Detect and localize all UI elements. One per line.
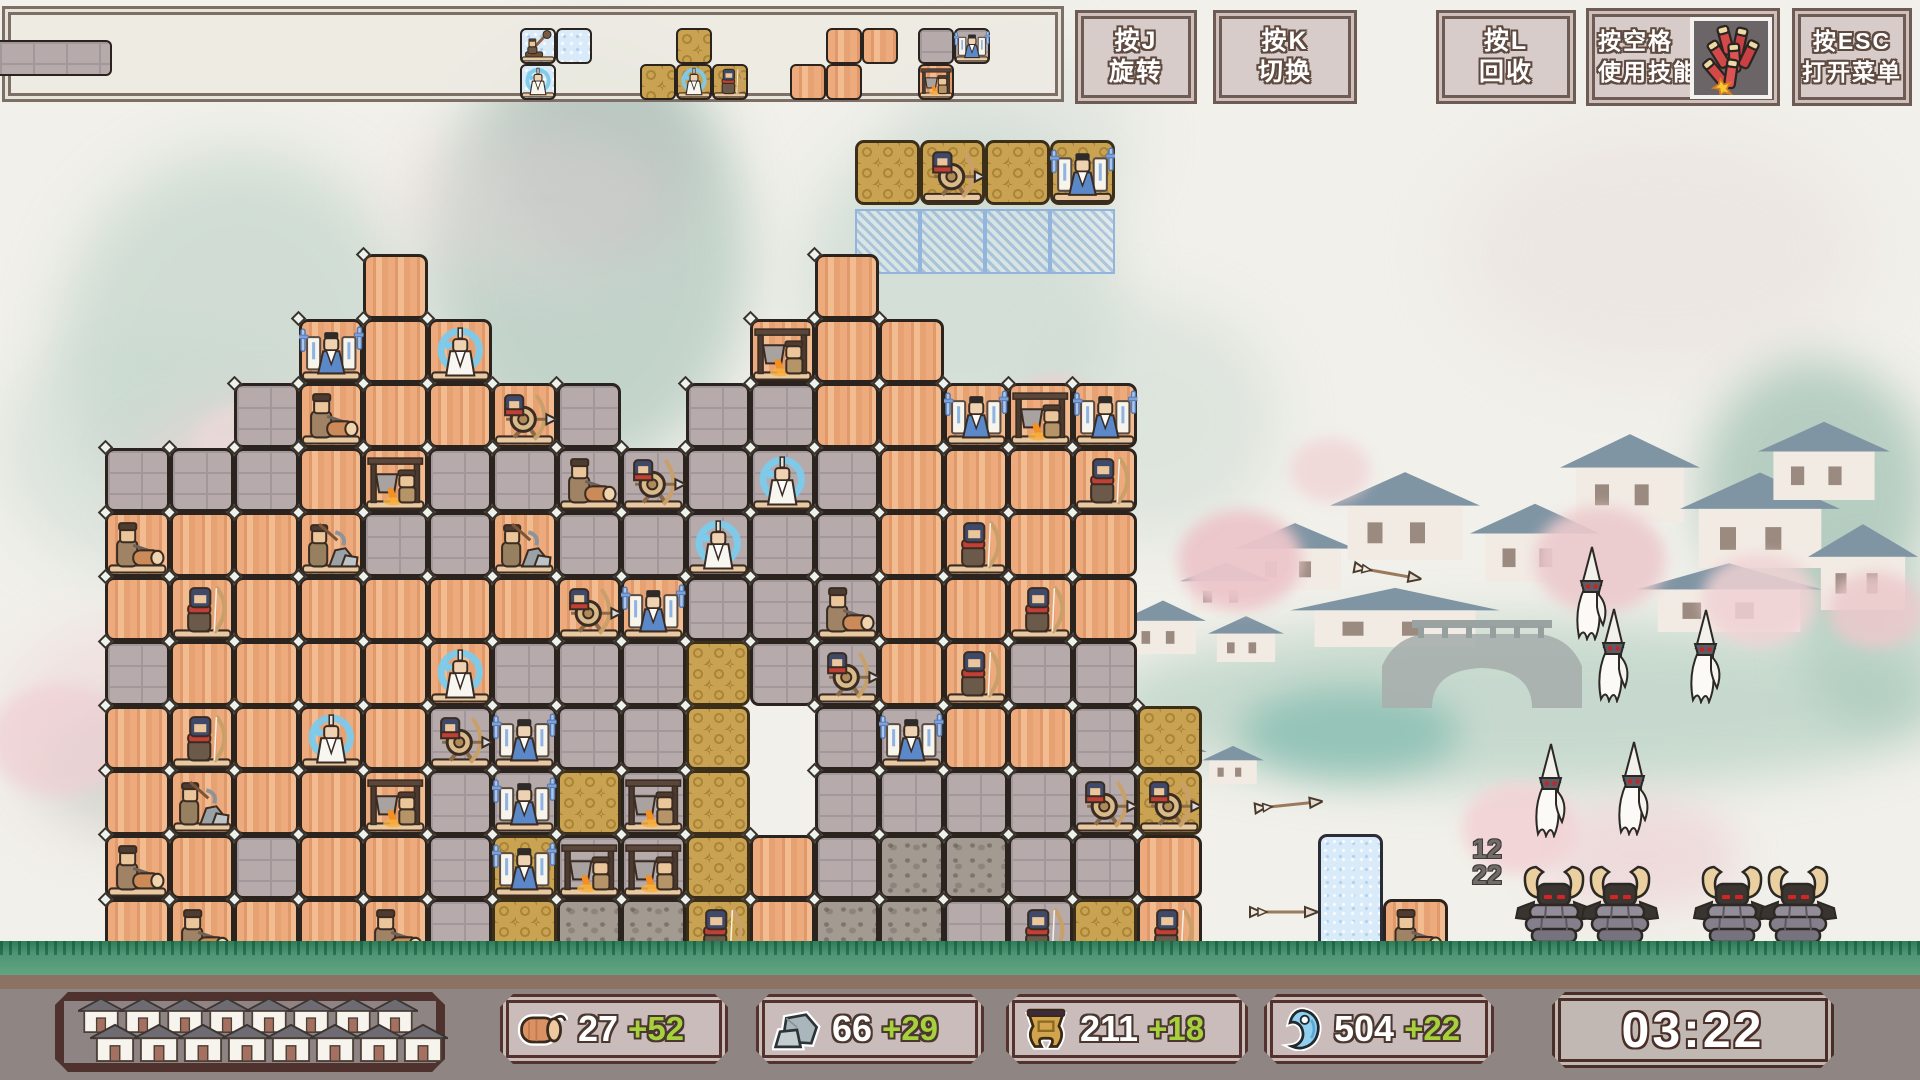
archer-unit [170, 704, 235, 769]
queue-piece-3-block [862, 28, 898, 64]
general-unit [492, 768, 557, 833]
wall-block [1073, 835, 1138, 900]
background-house [1208, 614, 1284, 662]
monk-unit [428, 317, 493, 382]
wall-block [234, 835, 299, 900]
wall-block [686, 383, 751, 448]
wall-block [944, 448, 1009, 513]
wall-block [492, 448, 557, 513]
recycle-button[interactable]: 按L 回收 [1436, 10, 1576, 104]
archer-unit [944, 510, 1009, 575]
wall-block [1137, 706, 1202, 771]
ding-icon [1022, 1006, 1070, 1052]
archer-unit [1073, 446, 1138, 511]
wall-block [750, 512, 815, 577]
wall-block [105, 706, 170, 771]
jade-resource-panel: 504 +22 [1264, 994, 1494, 1064]
wall-block [492, 641, 557, 706]
woodcutter-unit [815, 575, 880, 640]
archer-unit [170, 575, 235, 640]
rotate-action-label: 旋转 [1109, 57, 1163, 88]
wall-block [686, 706, 751, 771]
woodcutter-unit [105, 510, 170, 575]
jade-icon [1280, 1007, 1324, 1051]
wall-block [944, 835, 1009, 900]
wall-block [363, 641, 428, 706]
wall-block [686, 835, 751, 900]
forge-unit [363, 446, 428, 511]
skill-button[interactable]: 按空格 使用技能 [1586, 8, 1780, 106]
flying-arrow [1351, 560, 1422, 586]
wood-delta: +52 [628, 1010, 684, 1048]
wall-block [686, 770, 751, 835]
background-house [1202, 744, 1264, 784]
wall-block [621, 641, 686, 706]
wall-block [299, 770, 364, 835]
wall-block [750, 383, 815, 448]
blossom-tree [1290, 438, 1370, 502]
wall-block [363, 835, 428, 900]
rotate-key-label: 按J [1115, 26, 1158, 57]
monk-unit [686, 510, 751, 575]
game-screen: 按J 旋转 按K 切换 按L 回收 按空格 使用技能 按ESC 打开菜单 27 … [0, 0, 1920, 1080]
firecracker-icon [1694, 21, 1768, 95]
archer-unit [1008, 575, 1073, 640]
wall-block [1008, 770, 1073, 835]
wall-block [879, 383, 944, 448]
forge-unit [750, 317, 815, 382]
enemy-counter-top: 12 [1472, 836, 1502, 862]
wall-block [879, 319, 944, 384]
wall-block [234, 383, 299, 448]
monk-unit [750, 446, 815, 511]
falling-piece-block [985, 140, 1050, 205]
wood-resource-panel: 27 +52 [500, 994, 728, 1064]
miner-unit [492, 510, 557, 575]
switch-button[interactable]: 按K 切换 [1213, 10, 1357, 104]
recycle-key-label: 按L [1484, 26, 1528, 57]
general-unit [299, 317, 364, 382]
village-house [266, 1022, 316, 1062]
village-house [90, 1022, 140, 1062]
woodcutter-unit [557, 446, 622, 511]
general-unit [492, 704, 557, 769]
wall-block [299, 448, 364, 513]
woodcutter-unit [105, 833, 170, 898]
bronze-resource-panel: 211 +18 [1006, 994, 1248, 1064]
queue-piece-3-block [790, 64, 826, 100]
wall-block [815, 319, 880, 384]
bronze-count: 211 [1080, 1008, 1138, 1050]
wall-block [815, 770, 880, 835]
menu-action-label: 打开菜单 [1802, 57, 1902, 88]
log-icon [516, 1008, 568, 1050]
wall-block [428, 512, 493, 577]
ballista-unit [492, 381, 557, 446]
wall-block [750, 641, 815, 706]
wall-block [1073, 706, 1138, 771]
village-house [134, 1022, 184, 1062]
wall-block [363, 706, 428, 771]
drop-preview-cell [985, 209, 1050, 274]
wall-block [105, 577, 170, 642]
timer-panel: 03:22 [1552, 992, 1834, 1068]
ballista-unit [1073, 768, 1138, 833]
samurai-enemy [1756, 862, 1840, 946]
wall-block [234, 641, 299, 706]
drop-preview-cell [1050, 209, 1115, 274]
catapult-unit [520, 24, 556, 64]
stone-icon [772, 1007, 822, 1051]
menu-button[interactable]: 按ESC 打开菜单 [1792, 8, 1912, 106]
timer-value: 03:22 [1622, 1001, 1765, 1059]
wall-block [1008, 448, 1073, 513]
wall-block [557, 512, 622, 577]
enemy-counter-bottom: 22 [1472, 862, 1502, 888]
ghost-enemy [1682, 608, 1730, 704]
ballista-unit [920, 138, 985, 203]
ghost-enemy [1527, 742, 1575, 838]
wall-block [234, 577, 299, 642]
village-house [222, 1022, 272, 1062]
wall-block [299, 835, 364, 900]
general-unit [879, 704, 944, 769]
wall-block [234, 706, 299, 771]
wall-block [105, 770, 170, 835]
ballista-unit [1137, 768, 1202, 833]
ghost-enemy [1610, 740, 1658, 836]
general-unit [1050, 138, 1115, 203]
wall-block [879, 577, 944, 642]
stone-resource-panel: 66 +29 [756, 994, 984, 1064]
wall-block [686, 448, 751, 513]
wall-block [815, 254, 880, 319]
wall-block [1073, 641, 1138, 706]
miner-unit [299, 510, 364, 575]
menu-key-label: 按ESC [1813, 26, 1891, 57]
miner-unit [170, 768, 235, 833]
woodcutter-unit [299, 381, 364, 446]
wall-block [750, 577, 815, 642]
wall-block [815, 448, 880, 513]
wall-block [879, 835, 944, 900]
ballista-unit [428, 704, 493, 769]
bronze-delta: +18 [1148, 1010, 1204, 1048]
queue-piece-2-block [640, 64, 676, 100]
wall-block [686, 641, 751, 706]
wall-block [492, 577, 557, 642]
village-house [178, 1022, 228, 1062]
wall-block [428, 383, 493, 448]
blossom-tree [1828, 572, 1920, 649]
forge-unit [363, 768, 428, 833]
wall-block [170, 835, 235, 900]
forge-unit [557, 833, 622, 898]
wall-block [234, 512, 299, 577]
wall-block [944, 706, 1009, 771]
wall-block [105, 641, 170, 706]
flying-arrow [1252, 794, 1323, 815]
wall-block [815, 706, 880, 771]
wall-block [1008, 706, 1073, 771]
ghost-enemy [1590, 607, 1638, 703]
switch-action-label: 切换 [1258, 57, 1312, 88]
ballista-unit [815, 639, 880, 704]
wall-block [170, 448, 235, 513]
enemy-wave-counter: 12 22 [1472, 836, 1502, 888]
wall-block [170, 512, 235, 577]
wall-block [105, 448, 170, 513]
wall-block [557, 383, 622, 448]
jade-count: 504 [1334, 1008, 1394, 1050]
wall-block [879, 770, 944, 835]
village-house [398, 1022, 448, 1062]
archer-unit [712, 60, 748, 100]
wall-block [170, 641, 235, 706]
general-unit [944, 381, 1009, 446]
flying-arrow [1248, 905, 1318, 919]
wall-block [815, 512, 880, 577]
wall-block [299, 577, 364, 642]
switch-key-label: 按K [1261, 26, 1308, 57]
stone-bridge [1382, 598, 1582, 708]
wall-block [557, 770, 622, 835]
wall-block [557, 641, 622, 706]
recycle-action-label: 回收 [1479, 57, 1533, 88]
wall-block [944, 770, 1009, 835]
wall-block [234, 448, 299, 513]
wall-block [363, 512, 428, 577]
queue-piece-3-block [826, 64, 862, 100]
wall-block [428, 835, 493, 900]
wall-block [428, 770, 493, 835]
samurai-enemy [1578, 862, 1662, 946]
ballista-unit [557, 575, 622, 640]
monk-unit [520, 60, 556, 100]
wall-block [363, 254, 428, 319]
wood-count: 27 [578, 1008, 618, 1050]
village-house [354, 1022, 404, 1062]
general-unit [954, 24, 990, 64]
monk-unit [676, 60, 712, 100]
rotate-button[interactable]: 按J 旋转 [1075, 10, 1197, 104]
wall-block [944, 577, 1009, 642]
jade-delta: +22 [1404, 1010, 1460, 1048]
village-house [310, 1022, 360, 1062]
stone-count: 66 [832, 1008, 872, 1050]
wall-block [363, 383, 428, 448]
falling-piece-block [855, 140, 920, 205]
mountain-wash [1450, 120, 1870, 380]
wall-block [428, 577, 493, 642]
skill-key-label: 按空格 [1598, 26, 1673, 57]
drop-preview-cell [920, 209, 985, 274]
wall-block [1073, 577, 1138, 642]
wall-block [621, 512, 686, 577]
stone-delta: +29 [882, 1010, 938, 1048]
queue-piece-3-block [826, 28, 862, 64]
general-unit [492, 833, 557, 898]
wall-block [234, 770, 299, 835]
general-unit [1073, 381, 1138, 446]
wall-block [1008, 512, 1073, 577]
general-unit [621, 575, 686, 640]
wall-block [879, 512, 944, 577]
wall-block [557, 706, 622, 771]
wall-block [1073, 512, 1138, 577]
blossom-tree [1178, 510, 1302, 609]
queue-piece-partial [0, 40, 112, 76]
forge-unit [621, 768, 686, 833]
archer-unit [944, 639, 1009, 704]
queue-piece-2-block [676, 28, 712, 64]
wall-block [686, 577, 751, 642]
queue-piece-4-block [918, 28, 954, 64]
wall-block [815, 835, 880, 900]
skill-action-label: 使用技能 [1598, 57, 1698, 88]
monk-unit [299, 704, 364, 769]
wall-block [299, 641, 364, 706]
wall-block [363, 577, 428, 642]
wall-block [1008, 641, 1073, 706]
wall-block [1008, 835, 1073, 900]
wall-block [879, 641, 944, 706]
skill-slot[interactable] [1690, 17, 1772, 99]
ballista-unit [621, 446, 686, 511]
wall-block [1137, 835, 1202, 900]
wall-block [879, 448, 944, 513]
forge-unit [1008, 381, 1073, 446]
background-house [1758, 418, 1890, 500]
monk-unit [428, 639, 493, 704]
forge-unit [918, 60, 954, 100]
queue-piece-1-block [556, 28, 592, 64]
forge-unit [621, 833, 686, 898]
wall-block [428, 448, 493, 513]
grass-strip [0, 941, 1920, 977]
wall-block [363, 319, 428, 384]
wall-block [750, 835, 815, 900]
wall-block [815, 383, 880, 448]
wall-block [621, 706, 686, 771]
